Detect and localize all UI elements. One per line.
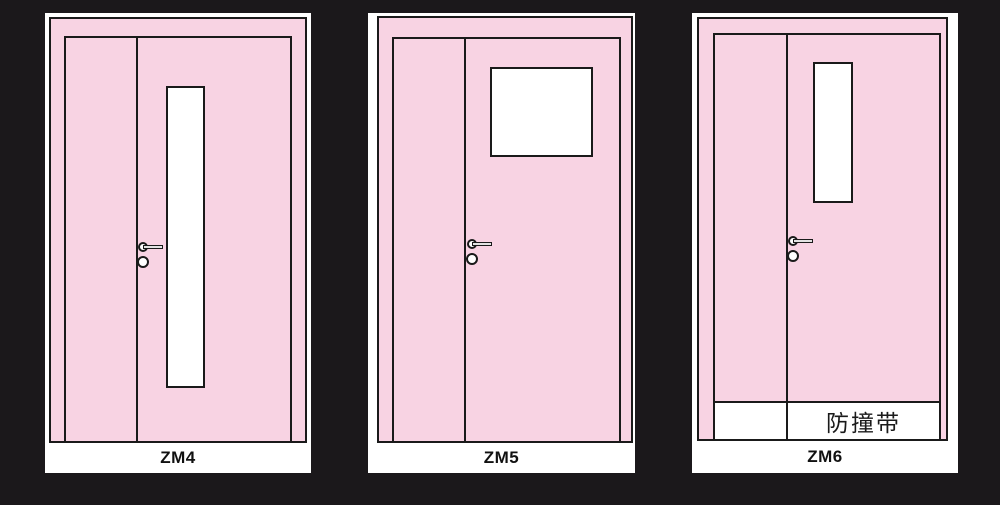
handle-lever-icon	[143, 245, 163, 249]
door-label: ZM6	[807, 447, 843, 467]
door-handle-icon	[138, 242, 172, 272]
label-strip: ZM6	[692, 441, 958, 473]
label-strip: ZM4	[45, 443, 311, 473]
door-leaves: 防撞带	[713, 33, 941, 439]
handle-cylinder-icon	[137, 256, 149, 268]
vision-panel-window	[166, 86, 205, 388]
door-frame	[49, 17, 307, 443]
door-label: ZM4	[160, 448, 196, 468]
vision-panel-window	[490, 67, 593, 157]
anti-collision-band: 防撞带	[715, 401, 939, 439]
drawing-canvas: ZM4 ZM5	[0, 0, 1000, 505]
door-card-zm6: 防撞带 ZM6	[692, 13, 958, 473]
band-spacer	[715, 403, 788, 439]
door-label: ZM5	[484, 448, 520, 468]
vision-panel-window	[813, 62, 853, 203]
door-frame	[377, 16, 633, 443]
handle-cylinder-icon	[466, 253, 478, 265]
label-strip: ZM5	[368, 443, 635, 473]
door-leaves	[392, 37, 621, 441]
door-leaves	[64, 36, 292, 441]
door-handle-icon	[467, 239, 501, 269]
handle-lever-icon	[793, 239, 813, 243]
door-frame: 防撞带	[697, 17, 948, 441]
door-handle-icon	[788, 236, 822, 266]
handle-lever-icon	[472, 242, 492, 246]
handle-cylinder-icon	[787, 250, 799, 262]
door-leaf-divider	[136, 38, 138, 441]
door-card-zm5: ZM5	[368, 13, 635, 473]
band-label: 防撞带	[788, 403, 939, 439]
door-card-zm4: ZM4	[45, 13, 311, 473]
door-leaf-divider	[464, 39, 466, 441]
